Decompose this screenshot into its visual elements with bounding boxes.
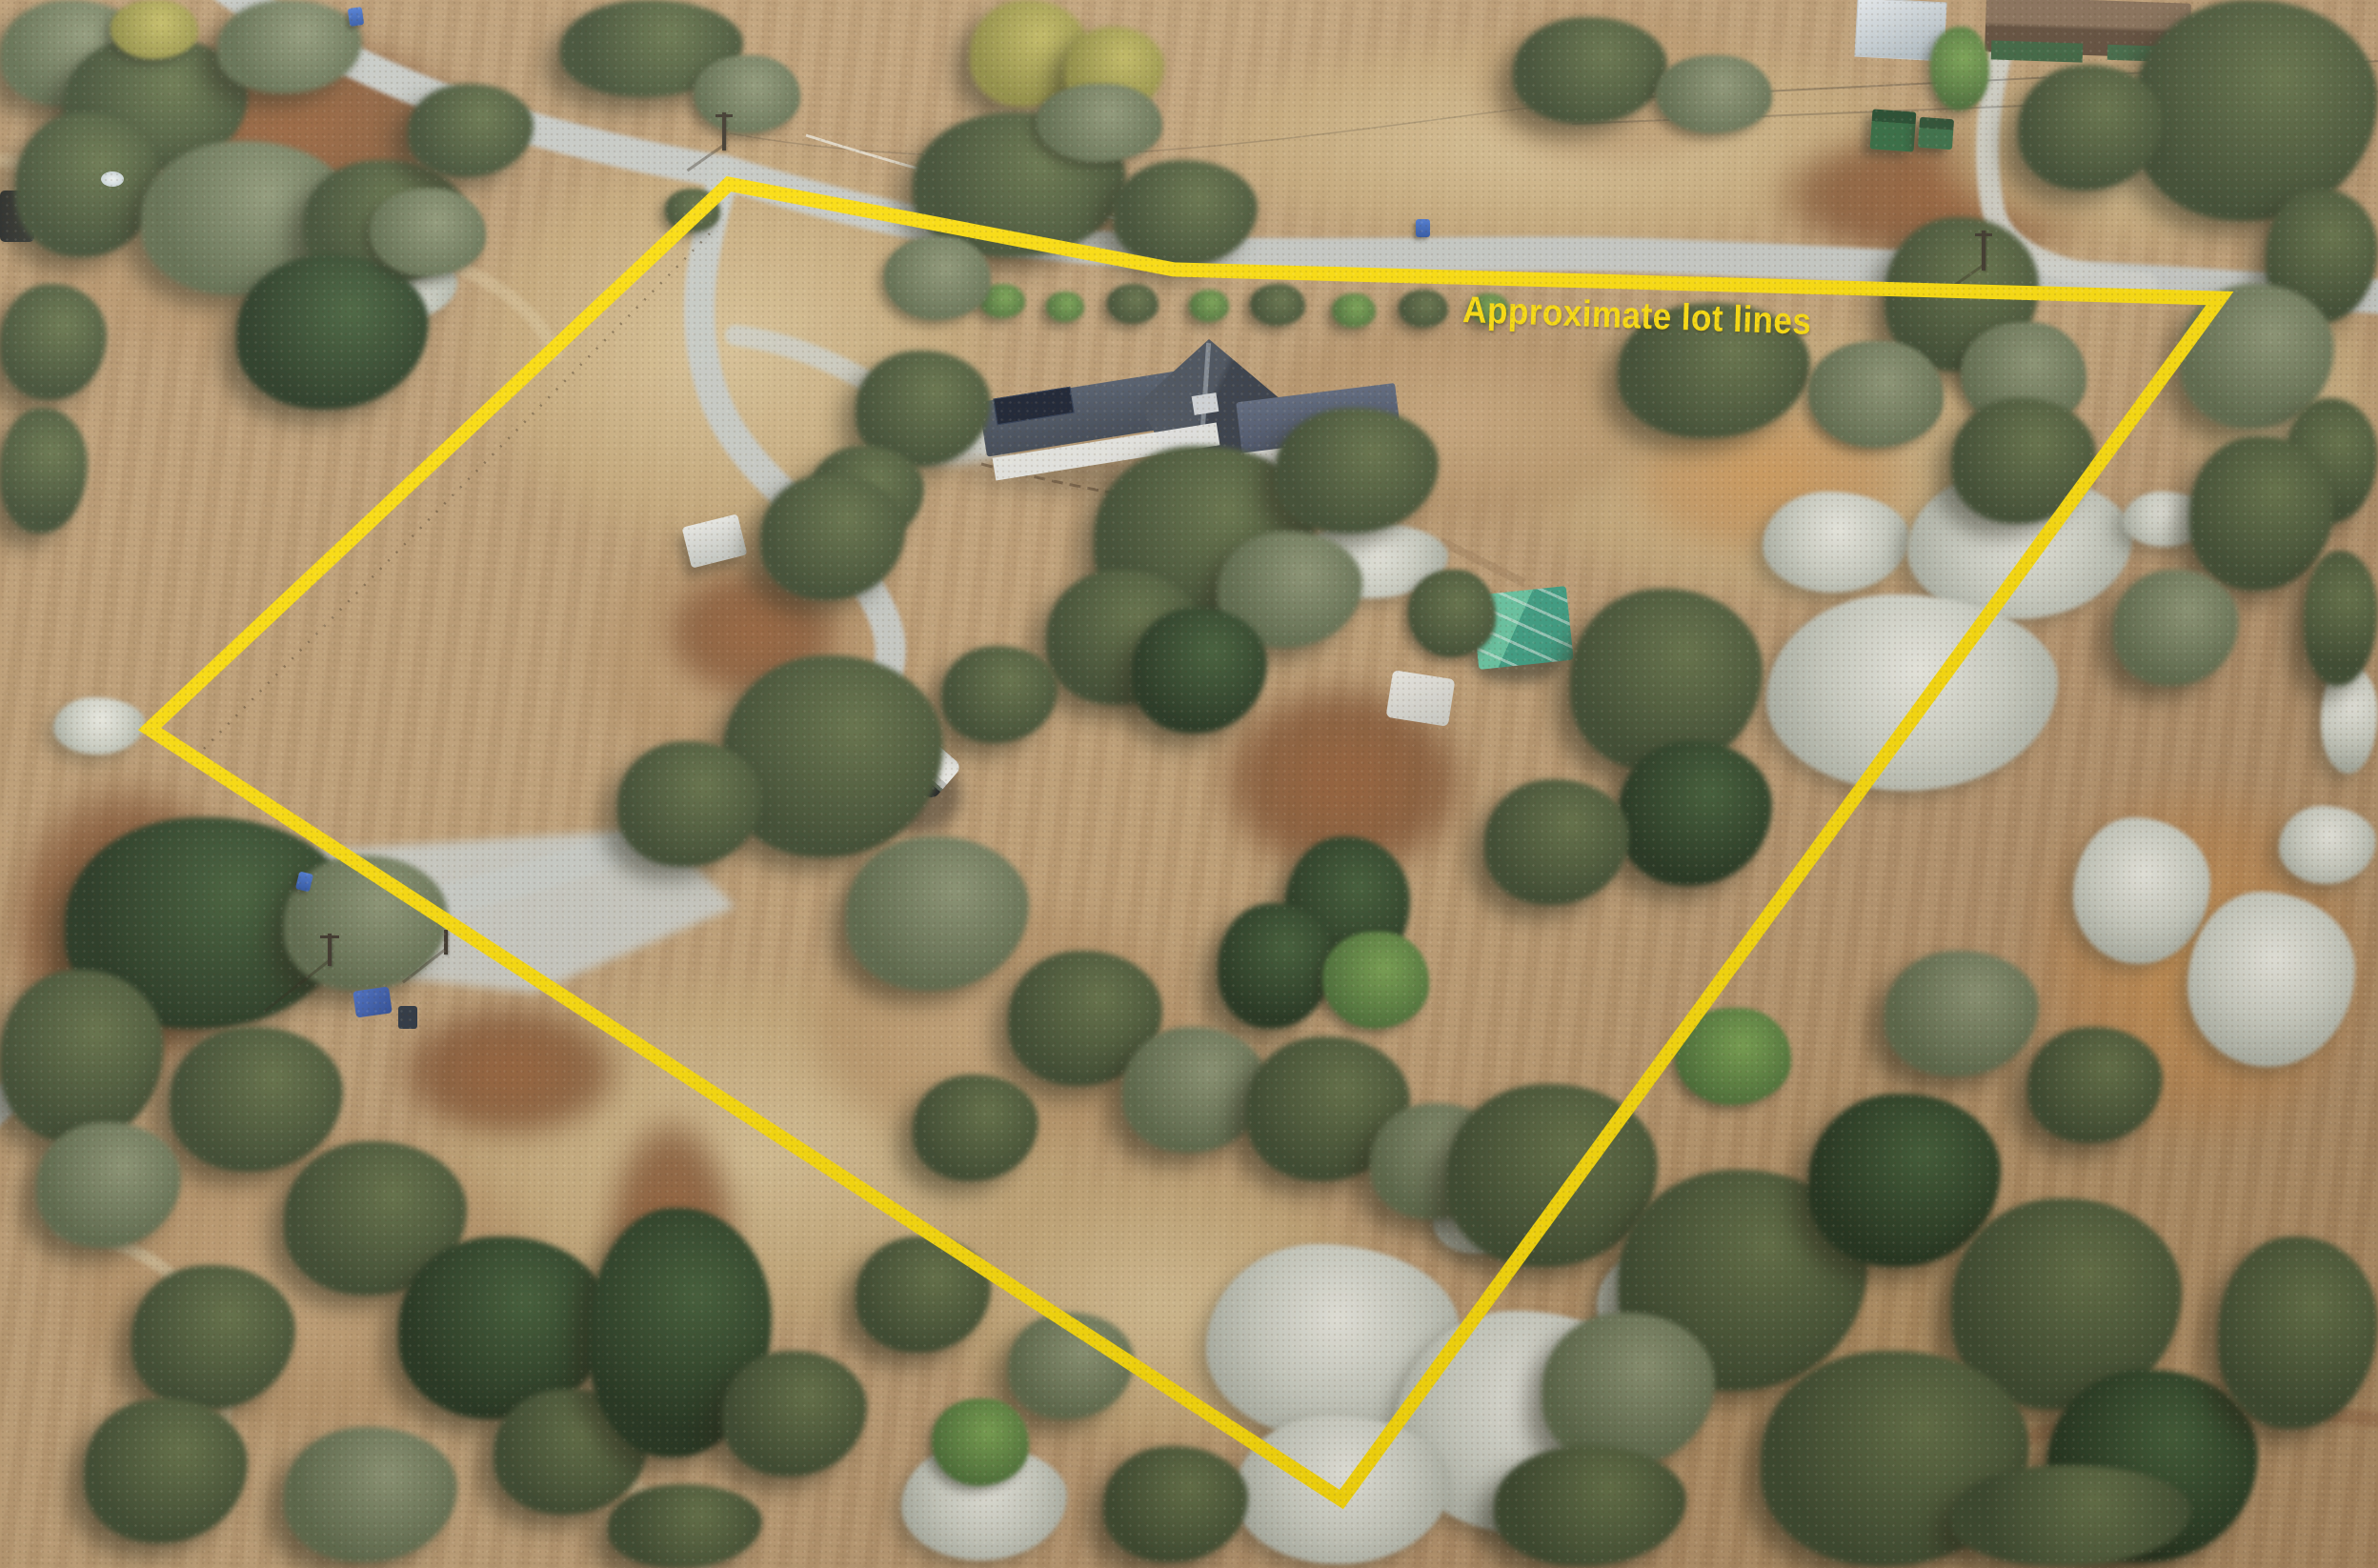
lot-line-layer <box>0 0 2378 1568</box>
lot-boundary <box>150 184 2220 1499</box>
aerial-lot-photo: Approximate lot lines <box>0 0 2378 1568</box>
